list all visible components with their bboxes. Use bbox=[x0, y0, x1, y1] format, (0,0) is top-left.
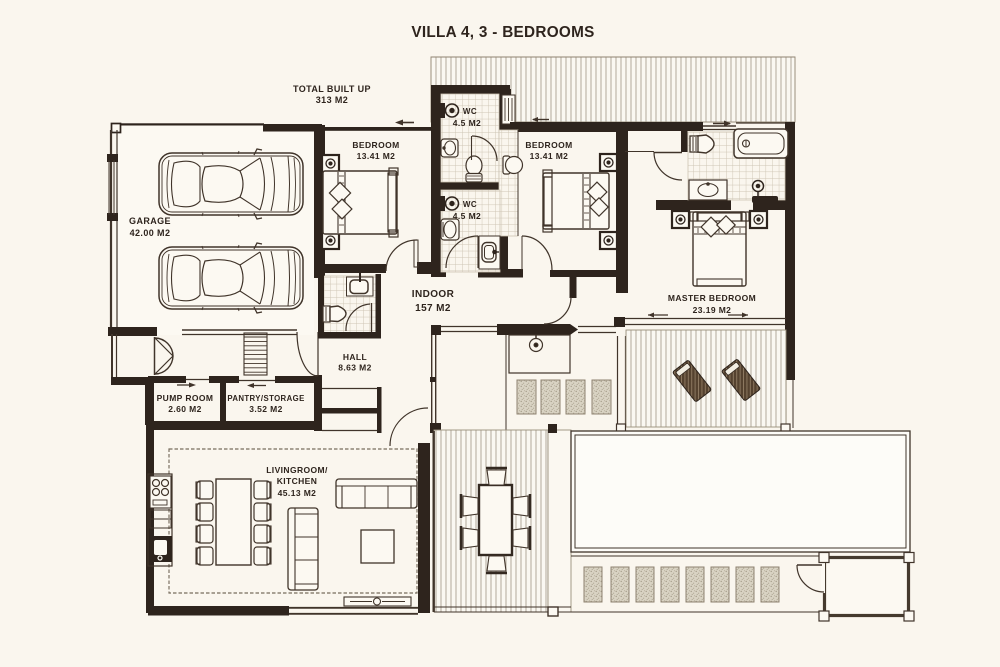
svg-text:MASTER BEDROOM: MASTER BEDROOM bbox=[668, 293, 756, 303]
svg-text:2.60 M2: 2.60 M2 bbox=[168, 404, 202, 414]
svg-text:13.41 M2: 13.41 M2 bbox=[357, 151, 396, 161]
svg-text:WC: WC bbox=[463, 107, 477, 116]
svg-text:LIVINGROOM/: LIVINGROOM/ bbox=[266, 465, 328, 475]
svg-text:BEDROOM: BEDROOM bbox=[352, 140, 399, 150]
svg-text:VILLA 4, 3 - BEDROOMS: VILLA 4, 3 - BEDROOMS bbox=[411, 24, 594, 41]
svg-text:4.5 M2: 4.5 M2 bbox=[453, 118, 481, 128]
svg-text:HALL: HALL bbox=[343, 352, 367, 362]
svg-text:13.41 M2: 13.41 M2 bbox=[530, 151, 569, 161]
svg-text:313 M2: 313 M2 bbox=[316, 95, 348, 105]
svg-text:KITCHEN: KITCHEN bbox=[277, 476, 318, 486]
svg-text:PANTRY/STORAGE: PANTRY/STORAGE bbox=[227, 394, 304, 403]
svg-text:BEDROOM: BEDROOM bbox=[525, 140, 572, 150]
svg-text:3.52 M2: 3.52 M2 bbox=[249, 404, 283, 414]
svg-text:45.13 M2: 45.13 M2 bbox=[278, 488, 317, 498]
svg-text:42.00 M2: 42.00 M2 bbox=[130, 228, 171, 238]
svg-text:WC: WC bbox=[463, 200, 477, 209]
svg-text:PUMP ROOM: PUMP ROOM bbox=[157, 393, 214, 403]
svg-text:23.19 M2: 23.19 M2 bbox=[693, 305, 732, 315]
svg-text:INDOOR: INDOOR bbox=[412, 289, 455, 300]
svg-text:157 M2: 157 M2 bbox=[415, 303, 451, 314]
svg-text:8.63 M2: 8.63 M2 bbox=[338, 363, 372, 373]
svg-text:GARAGE: GARAGE bbox=[129, 216, 171, 226]
svg-text:TOTAL BUILT UP: TOTAL BUILT UP bbox=[293, 84, 371, 94]
